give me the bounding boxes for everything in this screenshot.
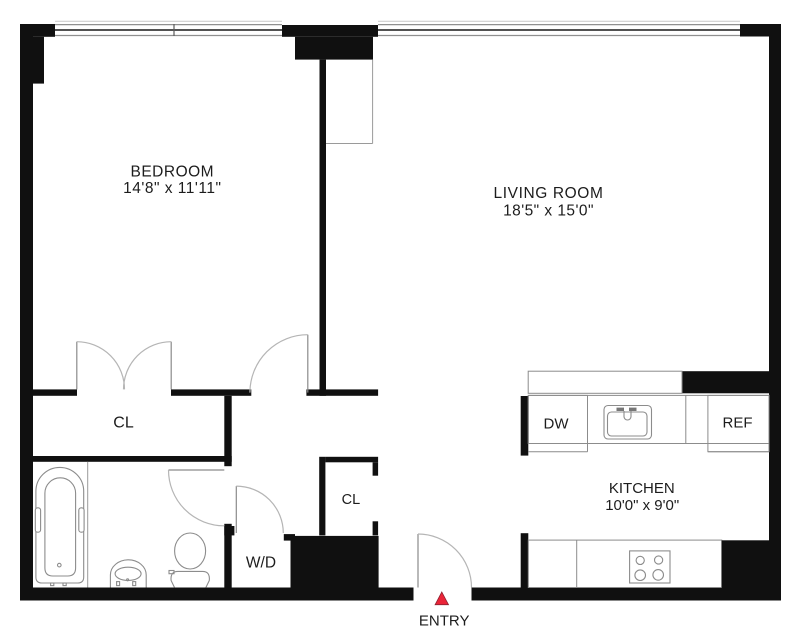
svg-text:10'0" x 9'0": 10'0" x 9'0" bbox=[605, 497, 679, 514]
svg-text:W/D: W/D bbox=[246, 555, 276, 572]
svg-text:14'8" x 11'11": 14'8" x 11'11" bbox=[123, 180, 221, 197]
svg-text:KITCHEN: KITCHEN bbox=[609, 480, 675, 497]
svg-text:LIVING ROOM: LIVING ROOM bbox=[494, 185, 604, 202]
svg-text:REF: REF bbox=[723, 415, 753, 432]
svg-text:ENTRY: ENTRY bbox=[419, 613, 470, 630]
svg-text:BEDROOM: BEDROOM bbox=[131, 164, 215, 181]
svg-text:CL: CL bbox=[342, 492, 361, 508]
svg-text:18'5" x 15'0": 18'5" x 15'0" bbox=[503, 203, 594, 220]
svg-text:DW: DW bbox=[544, 416, 570, 433]
svg-text:CL: CL bbox=[113, 415, 134, 432]
